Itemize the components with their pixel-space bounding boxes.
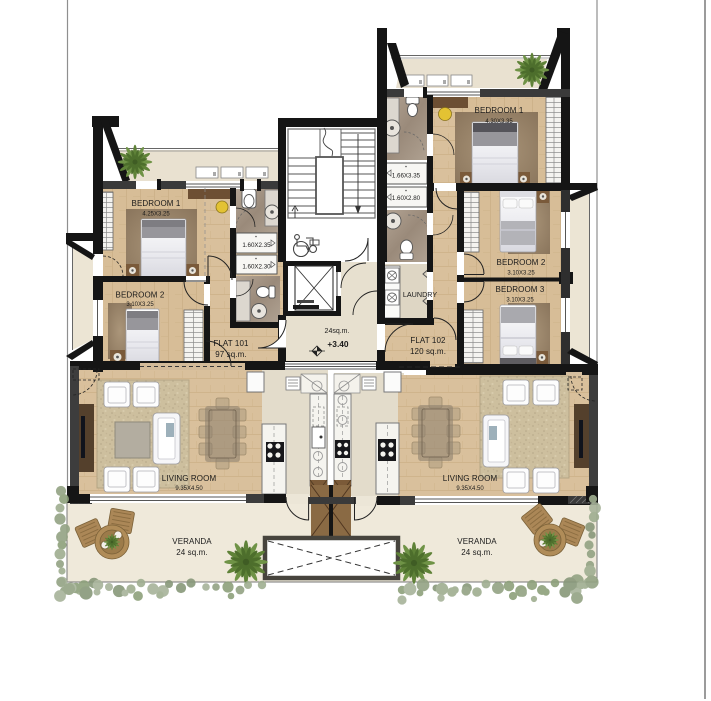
svg-text:LIVING ROOM: LIVING ROOM (162, 474, 217, 483)
svg-text:3.10X3.25: 3.10X3.25 (126, 302, 154, 308)
svg-text:+3.40: +3.40 (327, 339, 349, 349)
svg-text:BEDROOM 1: BEDROOM 1 (475, 106, 524, 115)
svg-text:BEDROOM 2: BEDROOM 2 (116, 291, 165, 300)
svg-text:3.10X3.25: 3.10X3.25 (507, 271, 535, 277)
svg-text:3.10X3.25: 3.10X3.25 (506, 298, 534, 304)
svg-text:24 sq.m.: 24 sq.m. (176, 548, 207, 557)
svg-text:LIVING ROOM: LIVING ROOM (443, 474, 498, 483)
svg-text:9.35X4.50: 9.35X4.50 (175, 486, 203, 492)
svg-text:FLAT 101: FLAT 101 (213, 339, 249, 348)
svg-text:1.66X3.35: 1.66X3.35 (392, 173, 421, 180)
svg-text:FLAT 102: FLAT 102 (410, 336, 446, 345)
svg-text:BEDROOM 3: BEDROOM 3 (496, 285, 545, 294)
svg-text:120 sq.m.: 120 sq.m. (410, 347, 446, 356)
svg-text:BEDROOM 2: BEDROOM 2 (497, 258, 546, 267)
svg-text:BEDROOM 1: BEDROOM 1 (132, 199, 181, 208)
svg-text:VERANDA: VERANDA (172, 537, 212, 546)
svg-text:24 sq.m.: 24 sq.m. (461, 548, 492, 557)
svg-text:97 sq.m.: 97 sq.m. (215, 350, 246, 359)
svg-text:1.60X2.80: 1.60X2.80 (392, 195, 421, 202)
svg-text:VERANDA: VERANDA (457, 537, 497, 546)
svg-text:4.25X3.25: 4.25X3.25 (142, 212, 170, 218)
svg-text:9.35X4.50: 9.35X4.50 (456, 486, 484, 492)
svg-text:LAUNDRY: LAUNDRY (403, 290, 437, 299)
svg-text:1.60X2.35: 1.60X2.35 (242, 242, 271, 249)
svg-text:4.30X3.35: 4.30X3.35 (485, 119, 513, 125)
svg-text:1.60X2.30: 1.60X2.30 (242, 264, 271, 271)
svg-text:24sq.m.: 24sq.m. (325, 328, 350, 335)
